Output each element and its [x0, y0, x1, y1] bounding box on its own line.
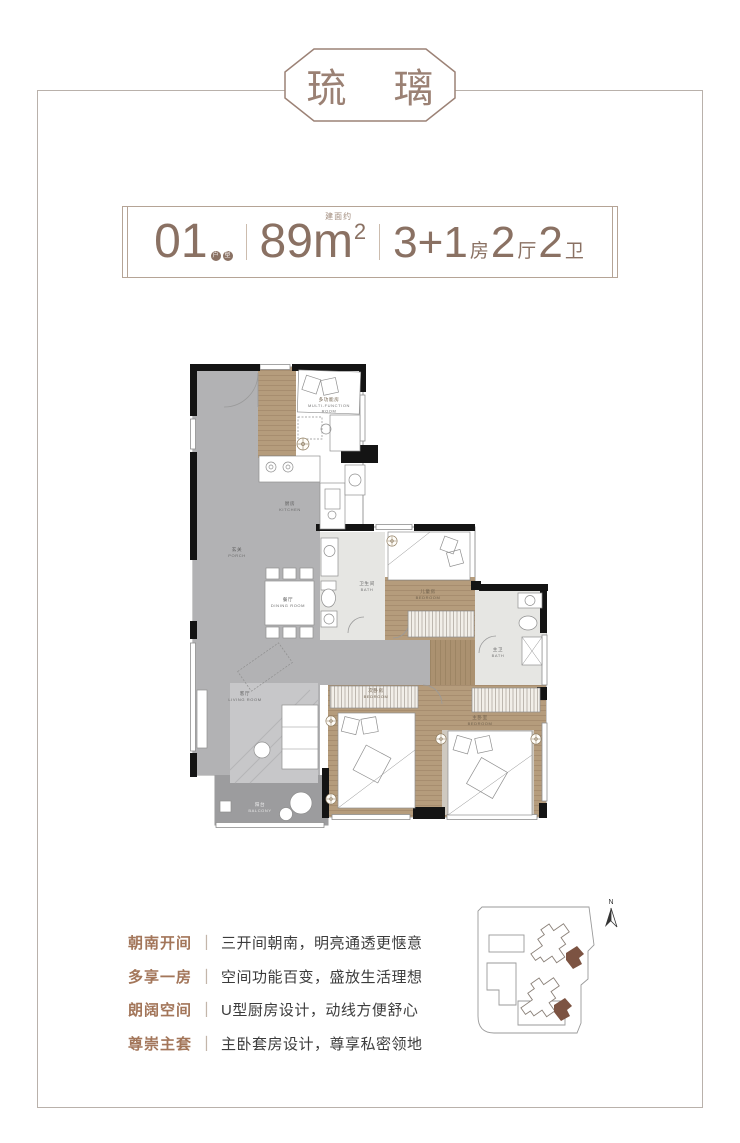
label-master-en: BEDROOM	[468, 721, 493, 726]
feature-separator-1: 丨	[199, 931, 214, 954]
feature-desc-1: 三开间朝南，明亮通透更惬意	[221, 932, 423, 953]
floor-plan: 玄关 PORCH 多功能房 MULTI-FUNCTION ROOM 厨房 KIT…	[180, 355, 570, 855]
label-bedroom2-zh: 次卧房	[368, 687, 384, 694]
label-bath2-zh: 主卫	[493, 646, 503, 652]
feature-title-4: 尊崇主套	[128, 1033, 192, 1054]
bedroom2-furniture	[330, 686, 418, 808]
bedroom2-fan-icon-1	[326, 716, 336, 726]
unit-badge-char-2: 型	[223, 251, 233, 261]
label-balcony-zh: 阳台	[255, 801, 265, 808]
feature-row-2: 多享一房 丨 空间功能百变，盛放生活理想	[128, 964, 468, 989]
bath1-fixtures	[321, 538, 338, 627]
kidroom-fan-icon-1	[387, 536, 397, 546]
label-kidroom-en: BEDROOM	[416, 595, 441, 600]
master-fan-icon-2	[531, 734, 541, 744]
compass-label: N	[608, 899, 613, 906]
layout-label-baths: 卫	[565, 236, 584, 263]
label-living-en: LIVING ROOM	[228, 697, 261, 702]
layout-num-halls: 2	[491, 221, 515, 265]
area-superscript: 2	[354, 221, 366, 243]
mfr-fan-icon	[297, 438, 309, 450]
band-inner-line-right	[612, 207, 613, 277]
floor-mfr-wood	[258, 367, 296, 458]
layout-num-rooms: 3+1	[393, 221, 468, 265]
label-bedroom2-en: BEDROOM	[364, 694, 389, 699]
label-bath1-zh: 卫生间	[359, 580, 375, 587]
floor-corridor-wood	[430, 640, 475, 685]
label-balcony-en: BALCONY	[248, 808, 271, 813]
area-number: 89m	[260, 218, 353, 266]
layout-label-rooms: 房	[470, 236, 489, 263]
label-porch-en: PORCH	[228, 553, 245, 558]
feature-row-3: 朗阔空间 丨 U型厨房设计，动线方便舒心	[128, 997, 468, 1022]
feature-separator-4: 丨	[199, 1031, 214, 1054]
unit-area: 建面约 89m 2	[260, 218, 367, 266]
label-mfr-en2: ROOM	[322, 409, 337, 414]
feature-separator-2: 丨	[199, 964, 214, 987]
label-kidroom-zh: 儿童房	[420, 588, 436, 595]
feature-title-2: 多享一房	[128, 966, 192, 987]
label-mfr-zh: 多功能房	[319, 396, 340, 403]
label-master-zh: 主卧室	[472, 714, 488, 721]
band-inner-line-left	[127, 207, 128, 277]
band-divider-2	[379, 224, 380, 260]
master-fan-icon-1	[436, 734, 446, 744]
label-dining-zh: 餐厅	[283, 596, 293, 603]
feature-separator-3: 丨	[199, 998, 214, 1021]
unit-number: 01	[154, 218, 207, 266]
compass-icon: N	[605, 899, 617, 927]
layout-label-halls: 厅	[517, 236, 536, 263]
unit-info-band: 01 户 型 建面约 89m 2 3+1 房 2 厅 2 卫	[122, 206, 618, 278]
label-porch-zh: 玄关	[232, 546, 242, 553]
band-divider-1	[246, 224, 247, 260]
feature-desc-4: 主卧套房设计，尊享私密领地	[221, 1033, 423, 1054]
site-plan: N	[462, 893, 630, 1051]
label-living-zh: 客厅	[240, 690, 250, 697]
feature-title-1: 朝南开间	[128, 932, 192, 953]
unit-badge-circles: 户 型	[211, 251, 233, 261]
label-dining-en: DINING ROOM	[271, 603, 305, 608]
label-mfr-en1: MULTI-FUNCTION	[308, 403, 350, 408]
feature-list: 朝南开间 丨 三开间朝南，明亮通透更惬意 多享一房 丨 空间功能百变，盛放生活理…	[128, 930, 468, 1064]
page-title: 琉 璃	[283, 48, 457, 122]
label-kitchen-en: KITCHEN	[279, 507, 301, 512]
unit-layout: 3+1 房 2 厅 2 卫	[393, 221, 586, 265]
feature-row-4: 尊崇主套 丨 主卧套房设计，尊享私密领地	[128, 1031, 468, 1056]
bedroom2-fan-icon-2	[326, 794, 336, 804]
title-badge: 琉 璃	[283, 48, 457, 122]
feature-title-3: 朗阔空间	[128, 999, 192, 1020]
feature-row-1: 朝南开间 丨 三开间朝南，明亮通透更惬意	[128, 930, 468, 955]
layout-num-baths: 2	[538, 221, 562, 265]
label-bath2-en: BATH	[492, 653, 505, 658]
feature-desc-2: 空间功能百变，盛放生活理想	[221, 966, 423, 987]
label-bath1-en: BATH	[361, 587, 374, 592]
area-note: 建面约	[325, 211, 352, 222]
feature-desc-3: U型厨房设计，动线方便舒心	[221, 999, 418, 1020]
label-kitchen-zh: 厨房	[285, 500, 295, 507]
unit-badge-char-1: 户	[211, 251, 221, 261]
unit-info-row: 01 户 型 建面约 89m 2 3+1 房 2 厅 2 卫	[154, 218, 586, 266]
